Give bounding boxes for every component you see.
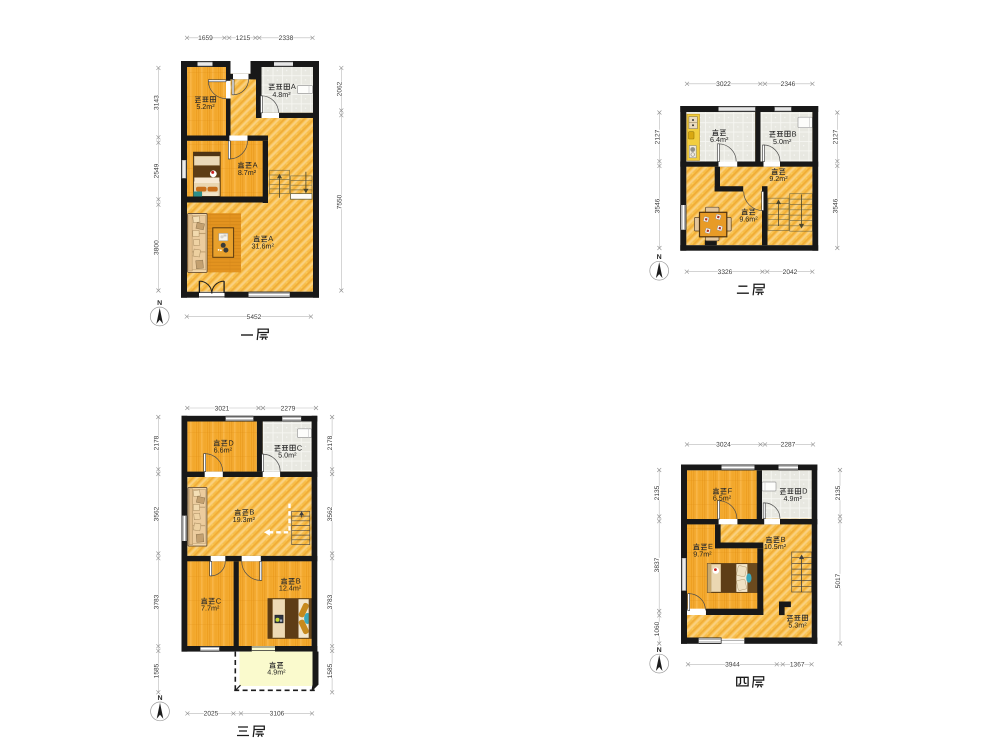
svg-text:3783: 3783: [327, 594, 334, 609]
svg-text:6.4m²: 6.4m²: [710, 135, 729, 144]
svg-text:N: N: [157, 300, 162, 307]
svg-text:3944: 3944: [725, 662, 740, 669]
svg-text:2127: 2127: [654, 129, 661, 144]
svg-text:D: D: [802, 487, 807, 496]
svg-text:N: N: [657, 647, 662, 654]
svg-text:2042: 2042: [783, 269, 798, 276]
svg-text:3800: 3800: [153, 240, 160, 255]
svg-text:3783: 3783: [153, 594, 160, 609]
svg-text:N: N: [657, 254, 662, 261]
svg-text:4.9m²: 4.9m²: [267, 667, 286, 676]
svg-text:5.3m²: 5.3m²: [788, 621, 807, 630]
svg-text:5.0m²: 5.0m²: [278, 451, 297, 460]
svg-text:31.6m²: 31.6m²: [252, 241, 275, 250]
svg-text:3022: 3022: [716, 81, 731, 88]
svg-text:1060: 1060: [654, 621, 661, 636]
svg-text:9.7m²: 9.7m²: [693, 549, 712, 558]
svg-text:2135: 2135: [835, 485, 842, 500]
svg-text:2135: 2135: [654, 485, 661, 500]
svg-text:2338: 2338: [279, 35, 294, 42]
svg-text:2279: 2279: [281, 405, 296, 412]
svg-text:19.3m²: 19.3m²: [233, 515, 256, 524]
svg-text:3021: 3021: [215, 405, 230, 412]
svg-text:N: N: [157, 695, 162, 702]
svg-text:2127: 2127: [832, 129, 839, 144]
svg-text:2178: 2178: [153, 435, 160, 450]
svg-text:9.2m²: 9.2m²: [769, 174, 788, 183]
svg-text:3837: 3837: [654, 557, 661, 572]
svg-text:3546: 3546: [654, 198, 661, 213]
svg-text:3143: 3143: [153, 95, 160, 110]
svg-text:2025: 2025: [204, 711, 219, 718]
svg-text:5.0m²: 5.0m²: [773, 137, 792, 146]
svg-text:5.2m²: 5.2m²: [196, 102, 215, 111]
svg-text:5017: 5017: [835, 573, 842, 588]
svg-text:7.7m²: 7.7m²: [201, 604, 220, 613]
svg-text:2178: 2178: [327, 435, 334, 450]
svg-text:1215: 1215: [236, 35, 251, 42]
svg-text:3562: 3562: [153, 506, 160, 521]
svg-text:9.6m²: 9.6m²: [739, 215, 758, 224]
svg-text:2062: 2062: [336, 81, 343, 96]
svg-text:B: B: [792, 129, 797, 138]
svg-text:4.8m²: 4.8m²: [272, 90, 291, 99]
svg-text:3326: 3326: [718, 269, 733, 276]
svg-text:3562: 3562: [327, 506, 334, 521]
svg-text:2346: 2346: [781, 81, 796, 88]
svg-text:1585: 1585: [327, 663, 334, 678]
svg-text:C: C: [297, 443, 303, 452]
svg-text:4.9m²: 4.9m²: [784, 494, 803, 503]
svg-text:5452: 5452: [247, 314, 262, 321]
svg-text:A: A: [291, 82, 296, 91]
svg-text:10.5m²: 10.5m²: [764, 542, 787, 551]
svg-text:12.4m²: 12.4m²: [279, 584, 302, 593]
svg-text:1585: 1585: [153, 663, 160, 678]
svg-text:3024: 3024: [716, 442, 731, 449]
svg-text:2549: 2549: [153, 163, 160, 178]
svg-text:2287: 2287: [781, 442, 796, 449]
svg-text:1367: 1367: [790, 662, 805, 669]
svg-text:3106: 3106: [270, 711, 285, 718]
svg-text:8.7m²: 8.7m²: [238, 168, 257, 177]
svg-text:7550: 7550: [336, 194, 343, 209]
svg-text:6.6m²: 6.6m²: [214, 445, 233, 454]
svg-text:1659: 1659: [198, 35, 213, 42]
svg-text:6.5m²: 6.5m²: [713, 494, 732, 503]
svg-text:3546: 3546: [832, 198, 839, 213]
